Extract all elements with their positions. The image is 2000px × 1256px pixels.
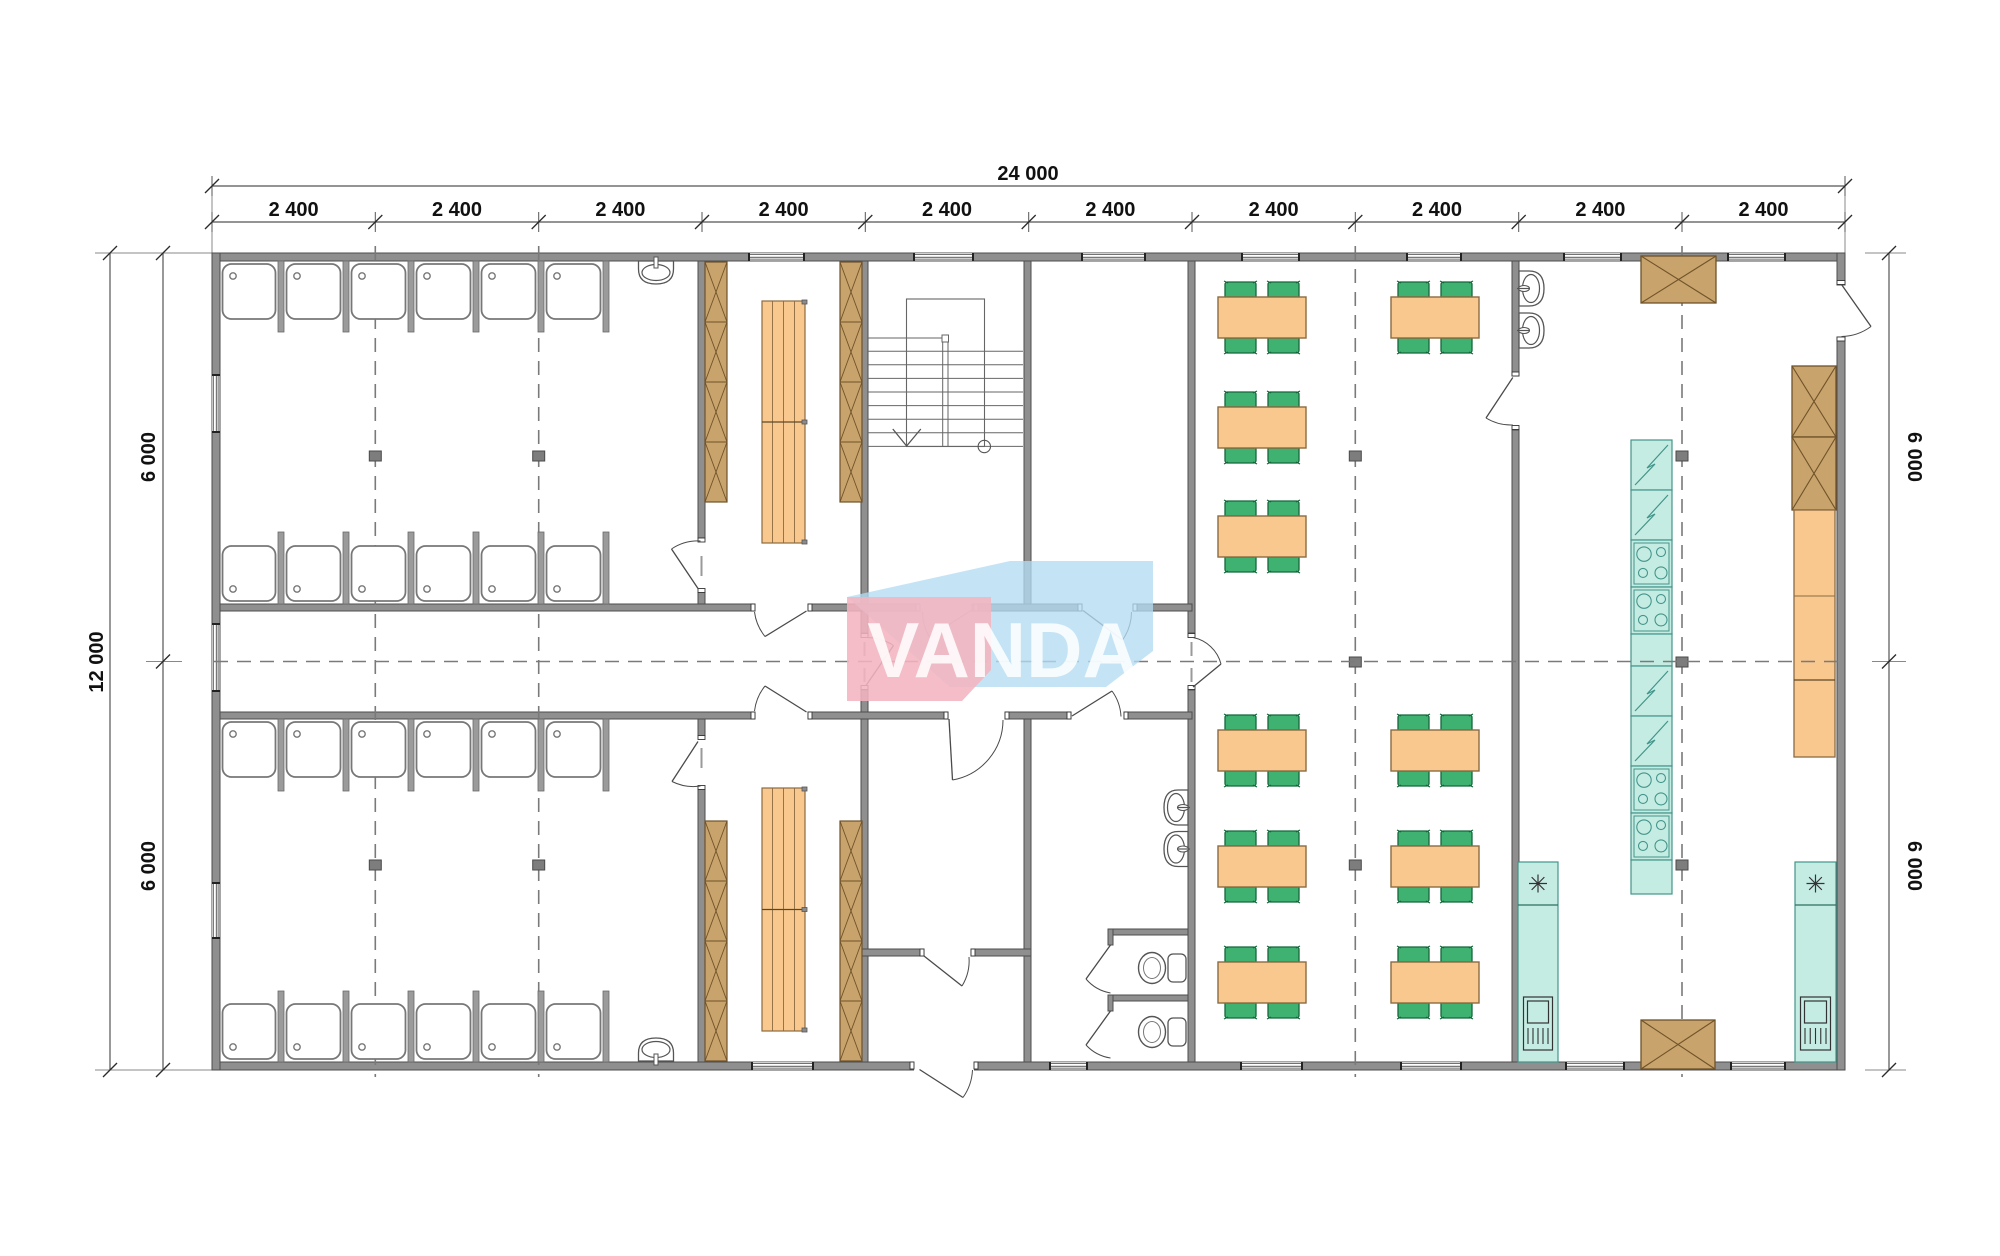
svg-text:2 400: 2 400 xyxy=(1085,199,1135,221)
svg-text:24 000: 24 000 xyxy=(997,163,1058,185)
svg-text:6 000: 6 000 xyxy=(1903,432,1925,482)
svg-text:2 400: 2 400 xyxy=(1738,199,1788,221)
svg-text:2 400: 2 400 xyxy=(759,199,809,221)
svg-text:6 000: 6 000 xyxy=(138,432,160,482)
svg-text:2 400: 2 400 xyxy=(595,199,645,221)
svg-text:2 400: 2 400 xyxy=(922,199,972,221)
svg-text:2 400: 2 400 xyxy=(1412,199,1462,221)
svg-text:6 000: 6 000 xyxy=(138,841,160,891)
svg-text:12 000: 12 000 xyxy=(86,631,108,692)
svg-text:6 000: 6 000 xyxy=(1903,841,1925,891)
svg-text:2 400: 2 400 xyxy=(432,199,482,221)
svg-text:2 400: 2 400 xyxy=(1575,199,1625,221)
svg-text:2 400: 2 400 xyxy=(269,199,319,221)
svg-text:VANDA: VANDA xyxy=(867,606,1139,694)
svg-text:2 400: 2 400 xyxy=(1249,199,1299,221)
